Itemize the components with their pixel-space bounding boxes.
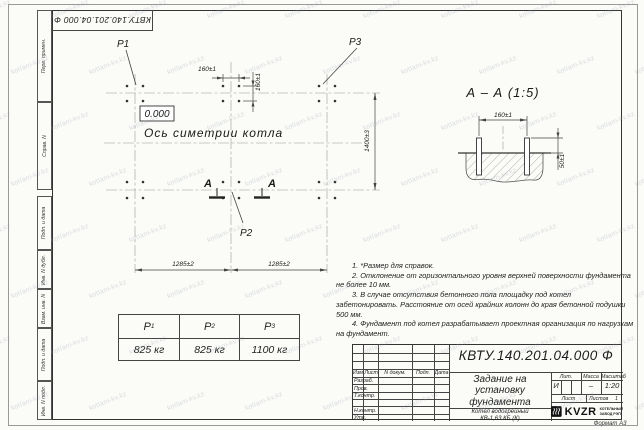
p-index: 3	[271, 323, 275, 330]
drawing-title: Задание на установку фундамента	[451, 374, 549, 408]
product-line-1: Котел водогрейный	[451, 409, 549, 416]
product-line-2: КВ-1,63 КБ (К)	[451, 416, 549, 423]
dim-span-right: 1285±2	[268, 261, 290, 268]
col-izm-list: Изм.Лист	[353, 370, 378, 376]
drawing-sheet: КВТУ.140.201.04.000 Ф Перв. примен. Спра…	[0, 0, 644, 430]
loads-table-header-p3: P3	[239, 315, 299, 338]
p3-load-label: P3	[349, 37, 362, 48]
note-2: 2. Отклонение от горизонтального уровня …	[336, 271, 634, 290]
dim-span-left: 1285±2	[172, 261, 194, 268]
loads-table-header-p2: P2	[179, 315, 239, 338]
section-title: А – А (1:5)	[465, 85, 539, 100]
dim-section-protrusion: 50±1	[559, 153, 566, 168]
p-index: 1	[151, 323, 155, 330]
sheets-label: Листов	[589, 396, 608, 402]
plan-centerlines	[104, 62, 380, 273]
plan-view: 160±1 160±1 1285±2 1285±2 1400±3 P1 P3 P…	[104, 37, 380, 273]
section-cut-marks	[209, 188, 270, 198]
elevation-value: 0.000	[144, 109, 169, 120]
section-letter-right: А	[267, 178, 276, 190]
notes-block: 1. *Размер для справок. 2. Отклонение от…	[336, 261, 634, 339]
lit-value: И	[551, 383, 561, 389]
col-signature: Подп.	[412, 370, 434, 376]
title-block: Изм.Лист N докум. Подп. Дата Разраб. Про…	[352, 344, 622, 420]
product-name: Котел водогрейный КВ-1,63 КБ (К)	[451, 409, 549, 422]
note-4: 4. Фундамент под котел разрабатывает про…	[336, 319, 634, 338]
anchor-bolt-left	[477, 138, 482, 175]
dim-row-spacing: 1400±3	[364, 130, 371, 152]
mass-value: –	[581, 383, 601, 389]
mass-header: Масса	[581, 374, 601, 380]
kvzr-logo-icon	[551, 405, 562, 418]
p-symbol: P	[144, 321, 151, 333]
sheets-value: 1	[615, 396, 618, 402]
lit-header: Лит.	[551, 374, 581, 380]
symmetry-axis-label: Ось симетрии котла	[144, 126, 283, 140]
p2-load-label: P2	[240, 228, 253, 239]
scale-header: Масштаб	[601, 374, 623, 380]
p-symbol: P	[264, 321, 271, 333]
loads-table-value-p1: 825 кг	[119, 338, 179, 360]
title-block-doc-number: КВТУ.140.201.04.000 Ф	[449, 348, 623, 363]
loads-table-value-p3: 1100 кг	[239, 338, 299, 360]
row-utv: Утв.	[354, 415, 366, 421]
anchor-bolt-right	[525, 138, 530, 175]
row-nkontr: Н.контр.	[354, 408, 376, 414]
company-tagline-1: КОТЕЛЬНЫЙ	[600, 407, 623, 411]
note-3: 3. В случае отсутствия бетонного пола пл…	[336, 290, 634, 319]
scale-value: 1:20	[601, 383, 623, 389]
company-tagline: КОТЕЛЬНЫЙ ЗАВОД РЭП	[600, 407, 623, 415]
dim-bolt-spacing-y: 160±1	[255, 73, 262, 91]
p-index: 2	[211, 323, 215, 330]
loads-table-value-p2: 825 кг	[179, 338, 239, 360]
p1-load-label: P1	[117, 39, 129, 50]
row-razrab: Разраб.	[354, 378, 373, 384]
loads-table-header-p1: P1	[119, 315, 179, 338]
company-cell: KVZR КОТЕЛЬНЫЙ ЗАВОД РЭП	[551, 402, 623, 421]
section-view: А – А (1:5) 160±1 50±1	[458, 85, 566, 182]
sheet-label: Лист	[551, 396, 586, 402]
col-date: Дата	[434, 370, 449, 376]
dim-section-bolt-spacing: 160±1	[494, 112, 512, 119]
format-note: Формат А3	[560, 421, 644, 427]
note-1: 1. *Размер для справок.	[336, 261, 634, 271]
plan-dimensions	[135, 72, 377, 272]
section-letter-left: А	[203, 178, 212, 190]
company-logo-text: KVZR	[565, 406, 597, 418]
dim-bolt-spacing-x: 160±1	[198, 66, 216, 73]
loads-table: P1 P2 P3 825 кг 825 кг 1100 кг	[118, 314, 300, 361]
row-tkontr: Т.контр.	[354, 393, 375, 399]
row-prov: Пров.	[354, 386, 368, 392]
company-tagline-2: ЗАВОД РЭП	[600, 412, 623, 416]
col-doc-number: N докум.	[378, 370, 412, 376]
